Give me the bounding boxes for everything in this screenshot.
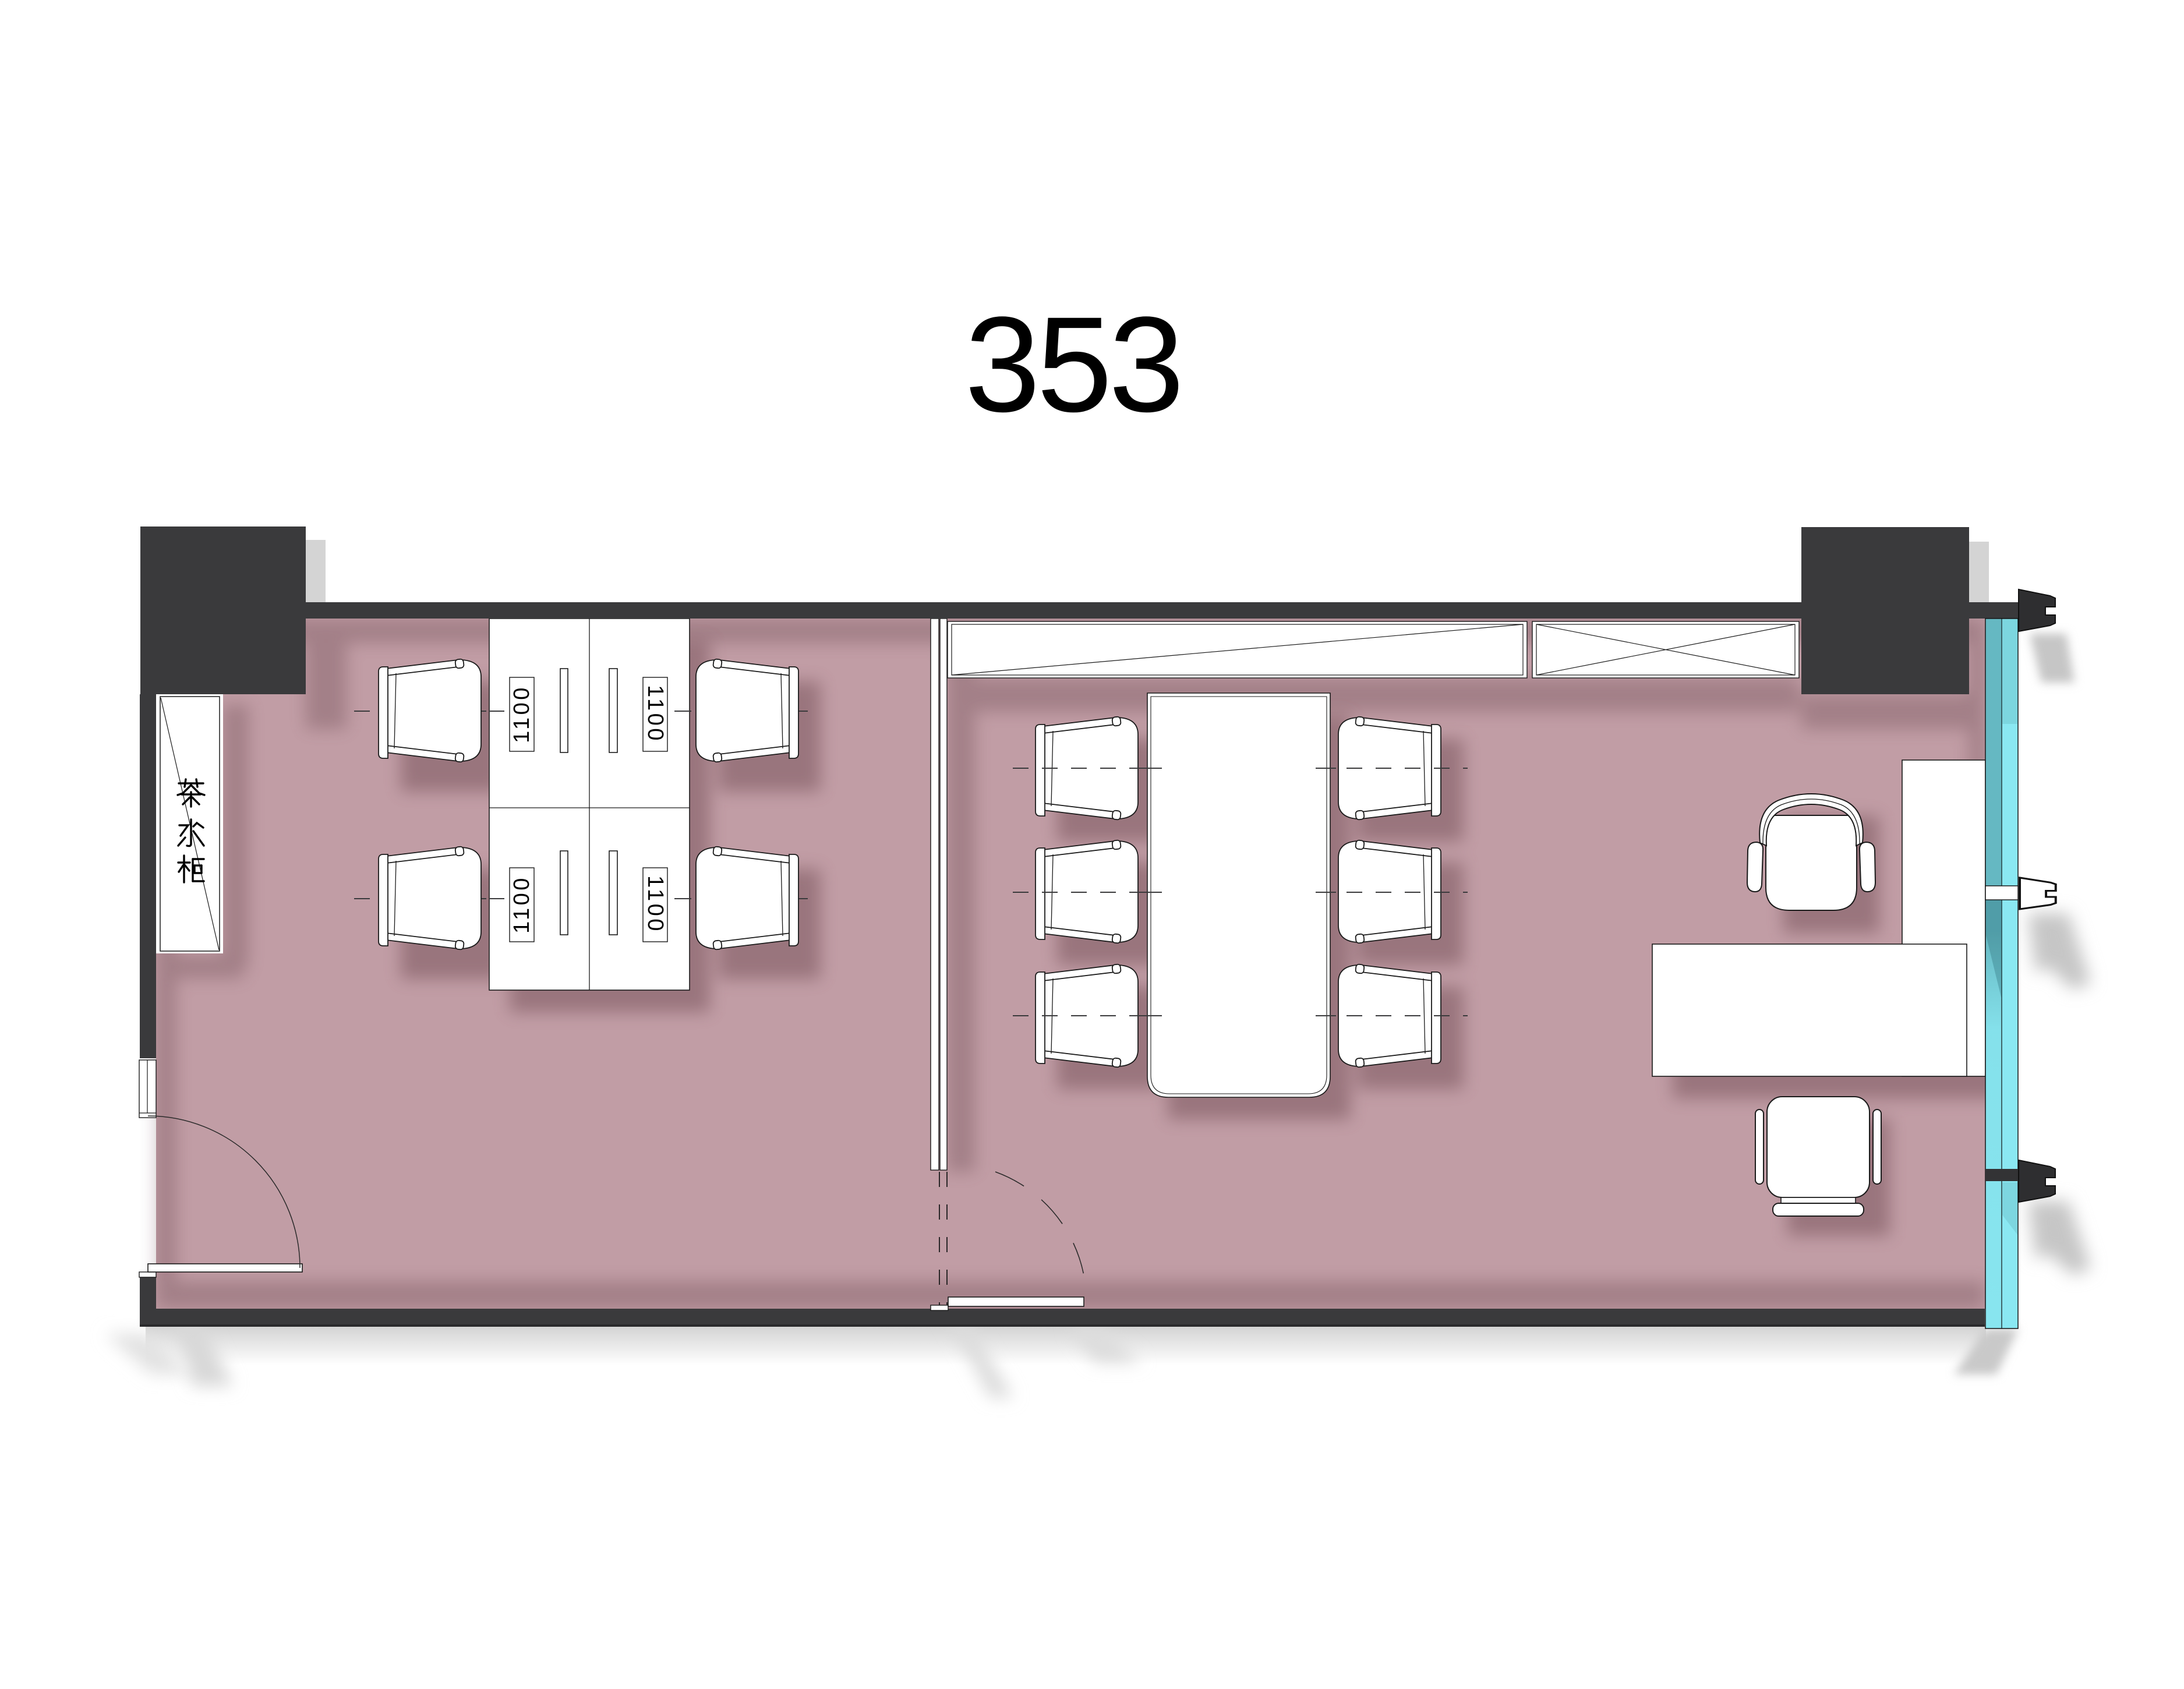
svg-text:1100: 1100 <box>510 875 534 934</box>
svg-text:1100: 1100 <box>643 875 667 934</box>
svg-text:353: 353 <box>965 289 1181 440</box>
svg-text:1100: 1100 <box>643 685 667 743</box>
svg-text:1100: 1100 <box>510 685 534 743</box>
